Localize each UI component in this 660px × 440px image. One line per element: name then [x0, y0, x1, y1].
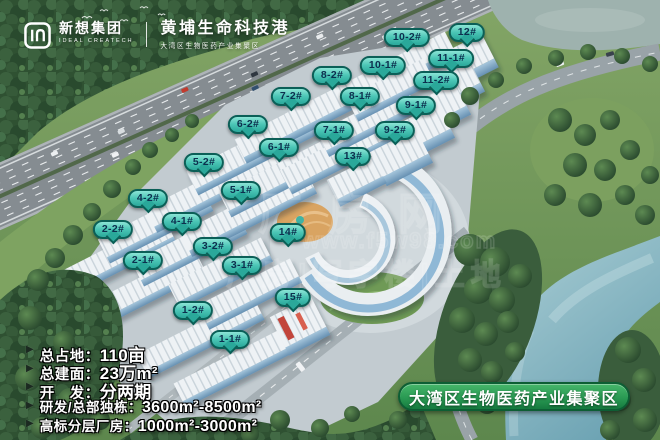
district-banner: 大湾区生物医药产业集聚区 — [398, 382, 630, 411]
stats-list: ▶总占地：110亩▶总建面：23万m²▶开 发：分两期▶研发/总部独栋：3600… — [26, 341, 262, 434]
stat-label: 研发/总部独栋： — [40, 396, 142, 416]
stat-value: 3600m²-8500m² — [142, 399, 262, 417]
building-label-text: 12# — [458, 26, 476, 38]
project-subtitle: 大湾区生物医药产业集聚区 — [160, 40, 290, 50]
triangle-bullet-icon: ▶ — [26, 400, 34, 411]
stat-row: ▶总占地：110亩 — [26, 341, 262, 360]
building-label-3-1: 3-1# — [222, 256, 262, 275]
building-label-text: 8-2# — [321, 69, 343, 81]
building-label-text: 1-2# — [182, 304, 204, 316]
building-label-6-1: 6-1# — [259, 138, 299, 157]
building-label-12: 12# — [449, 23, 485, 42]
building-label-10-2: 10-2# — [384, 28, 430, 47]
brand-name: 新想集团 — [59, 21, 133, 36]
building-label-5-2: 5-2# — [184, 153, 224, 172]
building-label-text: 10-1# — [369, 59, 397, 71]
building-label-8-1: 8-1# — [340, 87, 380, 106]
building-label-text: 6-1# — [268, 141, 290, 153]
building-label-4-1: 4-1# — [162, 212, 202, 231]
building-label-3-2: 3-2# — [193, 237, 233, 256]
stat-row: ▶高标分层厂房：1000m²-3000m² — [26, 415, 262, 434]
stat-row: ▶研发/总部独栋：3600m²-8500m² — [26, 396, 262, 415]
building-label-1-2: 1-2# — [173, 301, 213, 320]
ideal-createch-logo-icon — [24, 22, 51, 49]
triangle-bullet-icon: ▶ — [26, 381, 34, 392]
building-label-text: 7-1# — [323, 124, 345, 136]
building-label-text: 14# — [279, 226, 297, 238]
building-label-text: 4-2# — [137, 192, 159, 204]
building-label-text: 11-2# — [422, 74, 450, 86]
triangle-bullet-icon: ▶ — [26, 344, 34, 355]
brand-text: 新想集团 IDEAL CREATECH — [59, 21, 133, 44]
building-label-text: 13# — [344, 150, 362, 162]
building-label-text: 2-1# — [132, 254, 154, 266]
building-label-text: 11-1# — [437, 52, 465, 64]
building-label-7-1: 7-1# — [314, 121, 354, 140]
building-label-6-2: 6-2# — [228, 115, 268, 134]
building-label-text: 2-2# — [102, 223, 124, 235]
building-label-4-2: 4-2# — [128, 189, 168, 208]
building-label-10-1: 10-1# — [360, 56, 406, 75]
promo-poster: 厂房网 www.f5w98.com 厂房|写字楼|土地 10-2#12#11-1… — [0, 0, 660, 440]
building-label-text: 5-1# — [230, 184, 252, 196]
building-label-text: 10-2# — [393, 31, 421, 43]
building-label-2-2: 2-2# — [93, 220, 133, 239]
project-title: 黄埔生命科技港 — [160, 21, 290, 37]
building-label-text: 15# — [284, 291, 302, 303]
stat-value: 1000m²-3000m² — [138, 418, 258, 436]
building-label-text: 3-2# — [202, 240, 224, 252]
building-label-text: 4-1# — [171, 215, 193, 227]
building-label-2-1: 2-1# — [123, 251, 163, 270]
project-text: 黄埔生命科技港 大湾区生物医药产业集聚区 — [160, 21, 290, 50]
triangle-bullet-icon: ▶ — [26, 418, 34, 429]
building-label-7-2: 7-2# — [271, 87, 311, 106]
building-label-text: 5-2# — [193, 156, 215, 168]
building-label-text: 6-2# — [237, 118, 259, 130]
district-banner-text: 大湾区生物医药产业集聚区 — [409, 385, 619, 409]
building-label-15: 15# — [275, 288, 311, 307]
building-label-text: 9-1# — [405, 99, 427, 111]
building-label-11-1: 11-1# — [428, 49, 474, 68]
stat-label: 高标分层厂房： — [40, 415, 138, 435]
building-label-text: 9-2# — [384, 124, 406, 136]
building-label-5-1: 5-1# — [221, 181, 261, 200]
building-label-8-2: 8-2# — [312, 66, 352, 85]
building-label-text: 3-1# — [231, 259, 253, 271]
building-label-13: 13# — [335, 147, 371, 166]
building-label-text: 8-1# — [349, 90, 371, 102]
building-label-9-1: 9-1# — [396, 96, 436, 115]
header: 新想集团 IDEAL CREATECH 黄埔生命科技港 大湾区生物医药产业集聚区 — [24, 21, 290, 50]
triangle-bullet-icon: ▶ — [26, 363, 34, 374]
building-label-text: 7-2# — [280, 90, 302, 102]
header-divider — [146, 22, 147, 47]
building-label-11-2: 11-2# — [413, 71, 459, 90]
building-label-9-2: 9-2# — [375, 121, 415, 140]
brand-name-en: IDEAL CREATECH — [59, 38, 133, 44]
building-label-14: 14# — [270, 223, 306, 242]
